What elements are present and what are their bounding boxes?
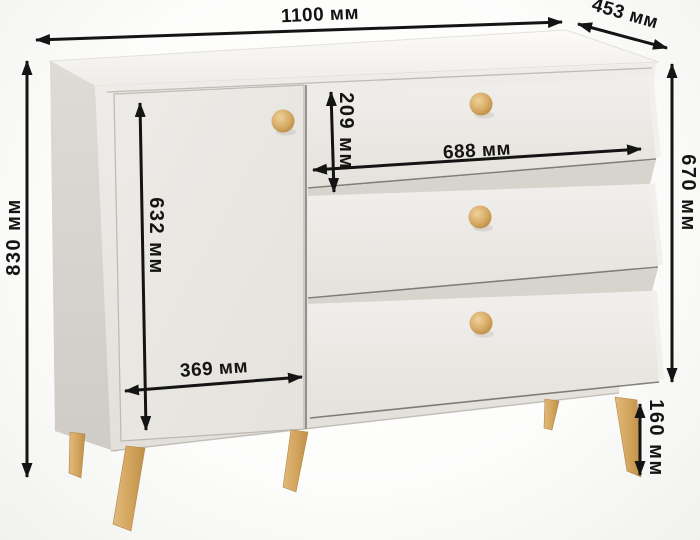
leg-back-left — [69, 432, 85, 478]
drawer-2-knob — [469, 206, 492, 229]
dim-leg-height-label: 160 мм — [645, 399, 667, 477]
leg-front-middle — [283, 430, 308, 492]
drawer-3-knob — [470, 312, 493, 335]
dim-overall-width-label: 1100 мм — [281, 3, 360, 27]
leg-back-right — [544, 399, 559, 430]
dim-body-height: 670 мм — [672, 64, 699, 382]
dim-overall-width: 1100 мм — [36, 3, 562, 40]
dim-body-height-label: 670 мм — [677, 154, 699, 232]
dim-door-height-label: 632 мм — [145, 197, 167, 275]
dim-drawer-width-label: 688 мм — [442, 138, 511, 163]
drawer-1-knob — [470, 93, 493, 116]
dim-leg-height: 160 мм — [640, 399, 667, 477]
leg-front-right — [615, 397, 641, 477]
diagram-canvas: 1100 мм 453 мм 830 мм 670 мм 209 мм 688 … — [0, 0, 700, 540]
door-knob — [272, 110, 295, 133]
dim-overall-height: 830 мм — [3, 61, 27, 477]
drawer-3-front — [308, 291, 659, 417]
dim-overall-height-label: 830 мм — [3, 198, 25, 276]
leg-front-left — [113, 446, 145, 531]
dimension-diagram: 1100 мм 453 мм 830 мм 670 мм 209 мм 688 … — [0, 0, 700, 540]
dim-drawer-front-height-label: 209 мм — [335, 92, 357, 170]
